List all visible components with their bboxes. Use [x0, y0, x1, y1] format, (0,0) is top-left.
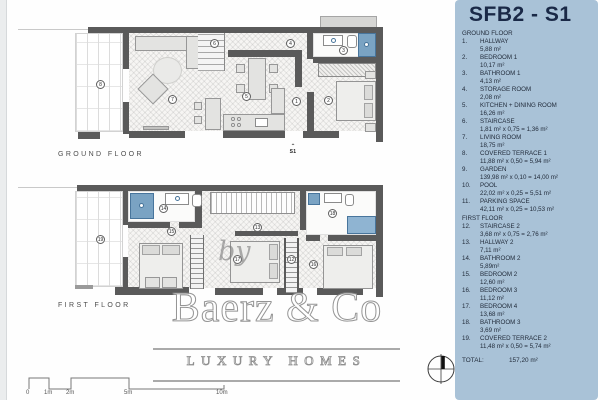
room-marker-staircase: 6 [210, 39, 219, 48]
legend-section-header: FIRST FLOOR [462, 215, 594, 223]
legend-item-name: STORAGE ROOM [480, 86, 594, 94]
wall [307, 92, 314, 131]
legend-item-area: 11,12 m² [480, 295, 594, 303]
scale-label: 0 [26, 390, 29, 396]
shower-drain-icon [139, 203, 144, 208]
legend-item-area: 5,88 m² [480, 46, 594, 54]
legend-item-name: LIVING ROOM [480, 134, 594, 142]
legend-item-name: BATHROOM 3 [480, 319, 594, 327]
shower [308, 193, 320, 205]
legend-item-area: 5,89m² [480, 263, 594, 271]
chair [236, 64, 245, 73]
bathroom-sink [324, 193, 342, 203]
legend-item-name: BEDROOM 1 [480, 54, 594, 62]
legend-item-area: 3,69 m² [480, 327, 594, 335]
toilet [345, 194, 354, 206]
legend-item-number: 10. [462, 182, 471, 190]
legend-item-area: 4,13 m² [480, 78, 594, 86]
bathtub [347, 216, 376, 234]
legend-item-number: 1. [462, 38, 467, 46]
legend-item: 4.STORAGE ROOM2,08 m² [462, 86, 594, 102]
legend-item-number: 7. [462, 134, 467, 142]
room-marker-storage: 4 [286, 39, 295, 48]
legend-item-number: 18. [462, 319, 471, 327]
legend-item-number: 6. [462, 118, 467, 126]
legend-item-area: 7,11 m² [480, 247, 594, 255]
shower-drain-icon [364, 42, 369, 47]
legend-item: 13.HALLWAY 27,11 m² [462, 239, 594, 255]
legend-item-area: 1,81 m² x 0,75 = 1,36 m² [480, 126, 594, 134]
stool [194, 102, 202, 110]
wardrobe [210, 192, 295, 214]
sink-basin-icon [331, 38, 336, 43]
legend-item-area: 13,68 m² [480, 311, 594, 319]
scale-label: 1m [44, 390, 52, 396]
legend-item-number: 16. [462, 287, 471, 295]
pillow [364, 103, 373, 118]
room-marker-bathroom2: 14 [159, 204, 168, 213]
total-label: TOTAL: [462, 357, 484, 364]
room-marker-terrace1: 8 [96, 80, 105, 89]
kitchen-counter [271, 88, 285, 114]
legend-item: 8.COVERED TERRACE 111,88 m² x 0,50 = 5,9… [462, 150, 594, 166]
legend-item-number: 15. [462, 271, 471, 279]
legend-item-number: 9. [462, 166, 467, 174]
stove-icon [231, 123, 235, 127]
legend-item-area: 3,68 m² x 0,75 = 2,76 m² [480, 231, 594, 239]
wall [223, 131, 285, 138]
legend-item: 5.KITCHEN + DINING ROOM16,26 m² [462, 102, 594, 118]
legend-item-name: PARKING SPACE [480, 198, 594, 206]
wall [328, 235, 376, 241]
watermark-tagline: LUXURY HOMES [153, 353, 400, 369]
pillow [269, 263, 278, 279]
legend-sidebar: SFB2 - S1 GROUND FLOOR 1.HALLWAY5,88 m² … [455, 0, 598, 400]
legend-item-name: BATHROOM 2 [480, 255, 594, 263]
legend-section-header: GROUND FLOOR [462, 30, 594, 38]
ground-floor-label: GROUND FLOOR [58, 151, 144, 158]
legend-item-area: 2,08 m² [480, 94, 594, 102]
pillow [346, 247, 362, 256]
legend-item-area: 11,48 m² x 0,50 = 5,74 m² [480, 343, 594, 351]
legend-item-number: 5. [462, 102, 467, 110]
legend-item-area: 16,26 m² [480, 110, 594, 118]
legend-item-number: 12. [462, 223, 471, 231]
wall [179, 222, 195, 228]
legend-item-area: 10,17 m² [480, 62, 594, 70]
closet [190, 235, 204, 289]
legend-item-name: BEDROOM 2 [480, 271, 594, 279]
entrance-label: S1 [286, 149, 300, 155]
room-marker-terrace2: 19 [96, 235, 105, 244]
room-marker-bedroom2: 15 [167, 227, 176, 236]
legend-item-number: 8. [462, 150, 467, 158]
legend-list: GROUND FLOOR 1.HALLWAY5,88 m² 2.BEDROOM … [455, 30, 598, 365]
wall [306, 235, 320, 241]
wall [228, 50, 302, 57]
legend-item-name: BATHROOM 1 [480, 70, 594, 78]
legend-item-name: HALLWAY [480, 38, 594, 46]
legend-item-area: 139,98 m² x 0,10 = 14,00 m² [480, 174, 594, 182]
legend-item-name: GARDEN [480, 166, 594, 174]
tv-unit [143, 126, 169, 130]
room-marker-living: 7 [168, 95, 177, 104]
wall [128, 222, 170, 228]
pillow [269, 244, 278, 260]
first-floor-label: FIRST FLOOR [58, 302, 131, 309]
compass-icon [427, 353, 457, 386]
legend-item-area: 11,88 m² x 0,50 = 5,94 m² [480, 158, 594, 166]
watermark-rule [153, 348, 400, 350]
pillow [162, 245, 180, 255]
room-marker-bathroom3: 18 [328, 209, 337, 218]
legend-item: 3.BATHROOM 14,13 m² [462, 70, 594, 86]
room-marker-bedroom1: 2 [324, 96, 333, 105]
scale-label: 2m [66, 390, 74, 396]
wall [303, 131, 339, 138]
legend-item: 19.COVERED TERRACE 211,48 m² x 0,50 = 5,… [462, 335, 594, 351]
legend-item: 16.BEDROOM 311,12 m² [462, 287, 594, 303]
legend-item: 14.BATHROOM 25,89m² [462, 255, 594, 271]
nightstand [365, 71, 376, 79]
chair [269, 64, 278, 73]
legend-item-number: 13. [462, 239, 471, 247]
wall [123, 191, 128, 225]
total-row: TOTAL:157,20 m² [462, 357, 594, 365]
legend-item-name: BEDROOM 3 [480, 287, 594, 295]
legend-item-number: 4. [462, 86, 467, 94]
legend-item-name: KITCHEN + DINING ROOM [480, 102, 594, 110]
legend-item-area: 42,11 m² x 0,25 = 10,53 m² [480, 206, 594, 214]
legend-item: 1.HALLWAY5,88 m² [462, 38, 594, 54]
legend-item: 9.GARDEN139,98 m² x 0,10 = 14,00 m² [462, 166, 594, 182]
scale-label: 10m [216, 390, 228, 396]
toilet [192, 194, 202, 207]
legend-item-name: HALLWAY 2 [480, 239, 594, 247]
room-marker-hallway: 1 [292, 97, 301, 106]
legend-item-name: POOL [480, 182, 594, 190]
legend-item-area: 22,02 m² x 0,25 = 5,51 m² [480, 190, 594, 198]
wall [129, 131, 185, 138]
wall [75, 285, 93, 289]
legend-item-name: COVERED TERRACE 1 [480, 150, 594, 158]
room-marker-bathroom1: 3 [339, 46, 348, 55]
room-marker-bedroom3: 16 [309, 260, 318, 269]
legend-item-name: COVERED TERRACE 2 [480, 335, 594, 343]
wall [123, 102, 129, 134]
wall [123, 33, 129, 69]
wall [295, 57, 302, 87]
watermark-by: by [218, 236, 251, 267]
room-marker-hallway2: 13 [253, 223, 262, 232]
legend-item: 11.PARKING SPACE42,11 m² x 0,25 = 10,53 … [462, 198, 594, 214]
ground-floor-plan: 1 2 3 4 5 6 7 8 [55, 24, 387, 150]
wall [123, 257, 128, 287]
legend-item-number: 2. [462, 54, 467, 62]
wall [307, 33, 313, 59]
legend-item-area: 18,75 m² [480, 142, 594, 150]
legend-item: 17.BEDROOM 413,68 m² [462, 303, 594, 319]
wall [300, 191, 306, 230]
legend-item: 12.STAIRCASE 23,68 m² x 0,75 = 2,76 m² [462, 223, 594, 239]
kitchen-island [205, 98, 221, 130]
stove-icon [231, 117, 235, 121]
page-edge [0, 0, 7, 400]
wall [88, 27, 383, 33]
wall [78, 132, 100, 139]
scale-bar [25, 372, 235, 392]
room-marker-staircase2: 12 [287, 255, 296, 264]
stool [194, 116, 202, 124]
legend-item: 15.BEDROOM 212,60 m² [462, 271, 594, 287]
legend-item-number: 11. [462, 198, 470, 206]
stove-icon [237, 123, 241, 127]
wall [376, 27, 383, 142]
watermark-brand: Baerz & Co [148, 286, 406, 330]
legend-item-number: 17. [462, 303, 471, 311]
entrance-marker: ⌃ S1 [286, 145, 300, 155]
kitchen-sink [255, 118, 268, 127]
total-value: 157,20 m² [509, 357, 538, 365]
legend-item: 7.LIVING ROOM18,75 m² [462, 134, 594, 150]
legend-item: 18.BATHROOM 33,69 m² [462, 319, 594, 335]
plan-title: SFB2 - S1 [469, 3, 592, 27]
legend-item-name: STAIRCASE 2 [480, 223, 594, 231]
legend-item: 2.BEDROOM 110,17 m² [462, 54, 594, 70]
legend-item-number: 19. [462, 335, 471, 343]
wall [376, 185, 383, 297]
pillow [142, 245, 160, 255]
legend-item-area: 12,60 m² [480, 279, 594, 287]
legend-item: 10.POOL22,02 m² x 0,25 = 5,51 m² [462, 182, 594, 198]
stove-icon [237, 117, 241, 121]
legend-item-name: BEDROOM 4 [480, 303, 594, 311]
sink-basin-icon [175, 196, 180, 201]
toilet [347, 35, 357, 48]
dining-table [248, 58, 266, 100]
room-marker-kitchen: 5 [242, 92, 251, 101]
legend-item-name: STAIRCASE [480, 118, 594, 126]
pillow [327, 247, 343, 256]
nightstand [365, 123, 376, 132]
scale-label: 5m [124, 390, 132, 396]
floorplan-page: 1 2 3 4 5 6 7 8 GROUND FLOOR ⌃ S1 [0, 0, 600, 400]
pillow [364, 85, 373, 100]
legend-item-number: 3. [462, 70, 467, 78]
legend-item: 6.STAIRCASE1,81 m² x 0,75 = 1,36 m² [462, 118, 594, 134]
legend-item-number: 14. [462, 255, 471, 263]
